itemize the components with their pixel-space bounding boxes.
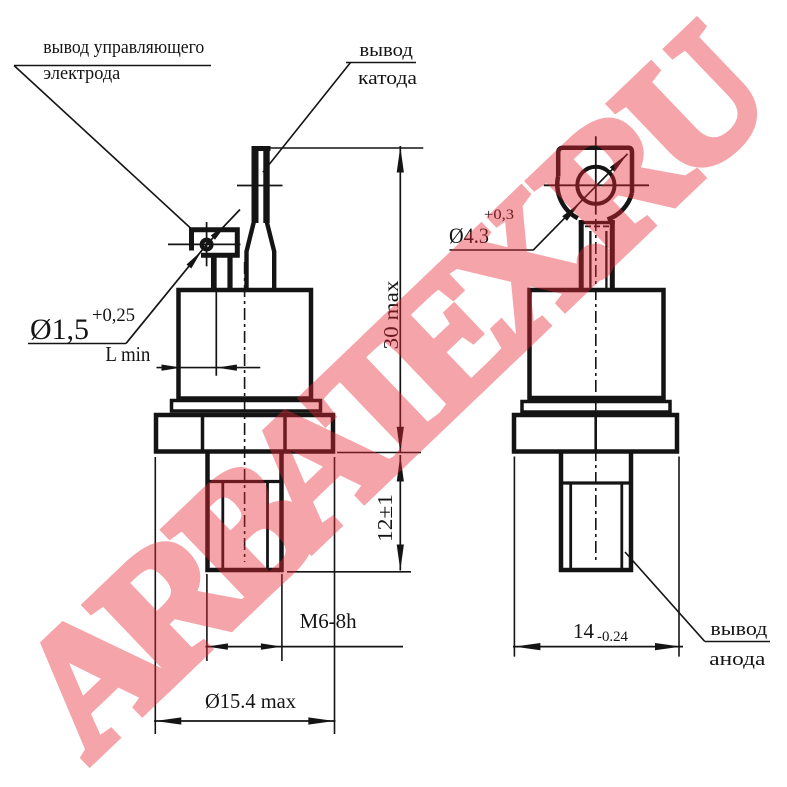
svg-text:катода: катода — [358, 68, 418, 89]
svg-text:Ø1,5: Ø1,5 — [30, 313, 89, 346]
svg-text:вывод: вывод — [359, 40, 413, 61]
svg-text:-0.24: -0.24 — [597, 629, 629, 645]
svg-text:вывод: вывод — [710, 619, 767, 640]
svg-text:электрода: электрода — [43, 63, 121, 84]
svg-text:L min: L min — [105, 342, 150, 366]
svg-text:14: 14 — [573, 619, 595, 643]
svg-text:M6-8h: M6-8h — [300, 609, 357, 633]
svg-text:анода: анода — [709, 649, 766, 670]
svg-text:вывод управляющего: вывод управляющего — [43, 37, 204, 58]
svg-text:Ø15.4 max: Ø15.4 max — [205, 689, 296, 713]
svg-text:+0,25: +0,25 — [92, 305, 135, 326]
